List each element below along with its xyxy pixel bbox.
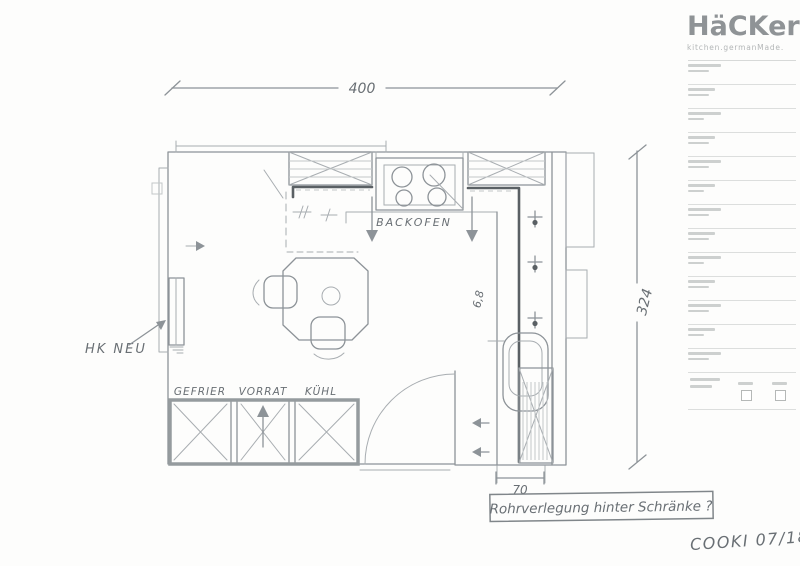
freezer-label: GEFRIER bbox=[174, 386, 226, 398]
haecker-logo: HäCKer bbox=[687, 13, 797, 40]
scanned-kitchen-plan-sheet: 400 324 70 bbox=[0, 0, 800, 566]
radiator-label: HK NEU bbox=[85, 342, 147, 357]
title-block-form bbox=[688, 60, 796, 410]
form-field bbox=[688, 349, 796, 373]
window-handle bbox=[152, 183, 162, 194]
cooktop bbox=[376, 152, 463, 210]
form-field bbox=[688, 253, 796, 277]
form-field bbox=[688, 157, 796, 181]
diagonal-mark bbox=[264, 170, 283, 198]
burner bbox=[423, 164, 445, 186]
form-field bbox=[688, 205, 796, 229]
connection-arrows bbox=[472, 418, 489, 457]
dim-width-label: 400 bbox=[349, 81, 376, 97]
approval-checkbox bbox=[741, 390, 752, 401]
wall-cabinet-left bbox=[289, 152, 372, 185]
burner bbox=[392, 167, 412, 187]
hatched-cabinet bbox=[519, 368, 553, 463]
wall-niche-mid bbox=[566, 270, 587, 338]
radiator-callout: HK NEU bbox=[85, 320, 166, 357]
small-arrow-right bbox=[186, 241, 205, 251]
chair-left bbox=[253, 276, 297, 308]
form-field bbox=[688, 85, 796, 109]
fridge-label: KÜHL bbox=[305, 385, 337, 398]
form-field bbox=[688, 181, 796, 205]
burner bbox=[428, 188, 446, 206]
form-field bbox=[688, 229, 796, 253]
approval-row bbox=[688, 373, 796, 410]
pantry-label: VORRAT bbox=[239, 386, 288, 398]
wall-niche-top bbox=[566, 153, 594, 247]
door-swing-arc bbox=[365, 374, 455, 464]
floor-plan-sketch: 400 324 70 bbox=[0, 0, 800, 566]
tall-cabinet-block: GEFRIER VORRAT KÜHL bbox=[170, 385, 358, 464]
tick-symbols bbox=[293, 206, 337, 221]
measure-label: 6,8 bbox=[470, 289, 486, 309]
oven-label: BACKOFEN bbox=[376, 216, 452, 229]
dining-table bbox=[283, 258, 368, 340]
form-field bbox=[688, 61, 796, 85]
outlet-symbols bbox=[528, 211, 542, 328]
chair-bottom bbox=[311, 317, 345, 359]
brand-header: HäCKer kitchen.germanMade. bbox=[687, 13, 797, 52]
dimension-pipe: 70 bbox=[496, 466, 545, 497]
form-field bbox=[688, 109, 796, 133]
room-walls bbox=[152, 141, 594, 465]
window-top bbox=[176, 141, 386, 152]
radiator bbox=[169, 278, 184, 353]
dim-height-label: 324 bbox=[634, 287, 656, 317]
dimension-height: 324 bbox=[629, 145, 656, 469]
signature: COOKI 07/18 bbox=[689, 527, 800, 554]
form-field bbox=[688, 133, 796, 157]
brand-tagline: kitchen.germanMade. bbox=[687, 43, 797, 52]
form-field bbox=[688, 277, 796, 301]
approval-checkbox bbox=[775, 390, 786, 401]
wall-cabinet-right bbox=[468, 152, 545, 185]
form-field bbox=[688, 301, 796, 325]
burner bbox=[396, 190, 412, 206]
dimension-width: 400 bbox=[165, 81, 565, 97]
form-field bbox=[688, 325, 796, 349]
note-text: Rohrverlegung hinter Schränke ? bbox=[489, 498, 712, 517]
